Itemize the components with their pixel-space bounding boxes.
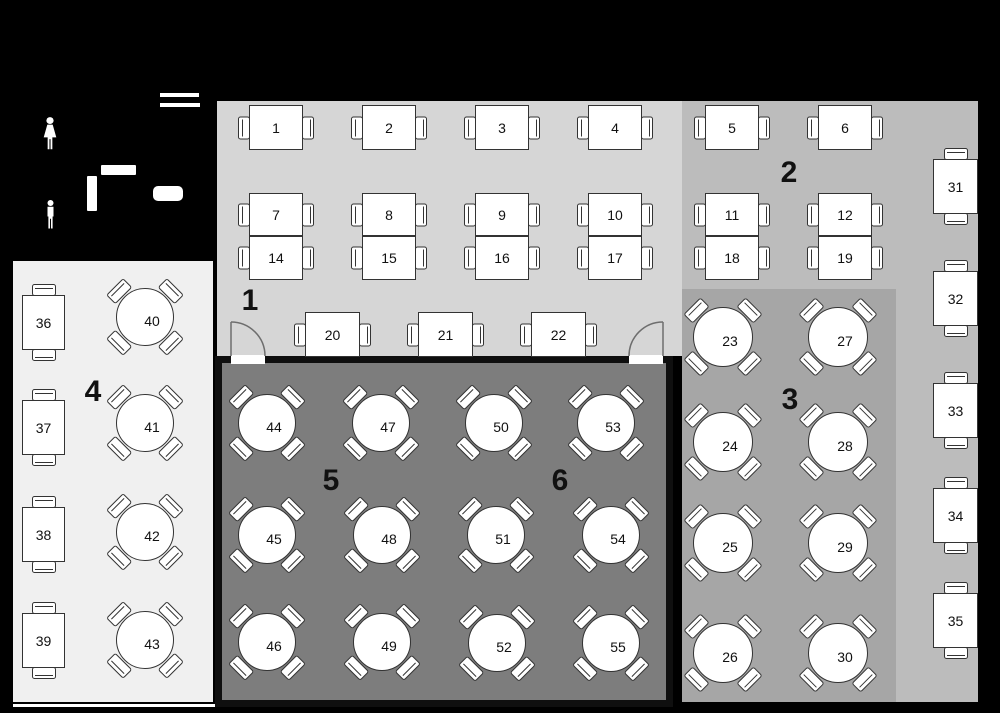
table-6[interactable]: 6 xyxy=(818,105,872,150)
table-surface: 49 xyxy=(353,613,411,671)
table-number: 39 xyxy=(36,634,52,648)
table-24[interactable]: 24 xyxy=(693,412,753,472)
table-number: 32 xyxy=(948,292,964,306)
floorplan-canvas: 1234567891011121415161718192021222324252… xyxy=(0,0,1000,713)
table-number: 12 xyxy=(837,208,853,222)
table-number: 29 xyxy=(837,540,853,554)
chair-icon xyxy=(944,437,968,449)
table-number: 1 xyxy=(272,121,280,135)
table-53[interactable]: 53 xyxy=(577,394,635,452)
chair-icon xyxy=(32,349,56,361)
table-5[interactable]: 5 xyxy=(705,105,759,150)
table-number: 43 xyxy=(144,637,160,651)
table-45[interactable]: 45 xyxy=(238,506,296,564)
table-number: 25 xyxy=(722,540,738,554)
counter-furniture xyxy=(101,165,136,175)
table-number: 28 xyxy=(837,439,853,453)
zone-4-bottom-wall-line xyxy=(13,704,215,707)
table-number: 40 xyxy=(144,314,160,328)
table-41[interactable]: 41 xyxy=(116,394,174,452)
table-3[interactable]: 3 xyxy=(475,105,529,150)
table-44[interactable]: 44 xyxy=(238,394,296,452)
table-surface: 32 xyxy=(933,271,978,326)
table-surface: 15 xyxy=(362,236,416,280)
table-number: 8 xyxy=(385,208,393,222)
chair-icon xyxy=(758,116,770,139)
chair-icon xyxy=(302,116,314,139)
table-number: 22 xyxy=(551,328,567,342)
table-surface: 40 xyxy=(116,288,174,346)
chair-icon xyxy=(871,247,883,270)
entrance-mark xyxy=(160,103,200,107)
table-surface: 37 xyxy=(22,400,65,455)
table-surface: 38 xyxy=(22,507,65,562)
zone-label-6: 6 xyxy=(552,464,569,498)
table-number: 49 xyxy=(381,639,397,653)
table-surface: 6 xyxy=(818,105,872,150)
table-number: 3 xyxy=(498,121,506,135)
table-number: 4 xyxy=(611,121,619,135)
table-34[interactable]: 34 xyxy=(933,488,978,543)
table-number: 10 xyxy=(607,208,623,222)
table-15[interactable]: 15 xyxy=(362,236,416,280)
zone-label-5: 5 xyxy=(323,464,340,498)
table-52[interactable]: 52 xyxy=(468,614,526,672)
table-surface: 55 xyxy=(582,614,640,672)
table-number: 24 xyxy=(722,439,738,453)
chair-icon xyxy=(641,203,653,226)
table-29[interactable]: 29 xyxy=(808,513,868,573)
entrance-mark xyxy=(160,93,199,97)
table-20[interactable]: 20 xyxy=(305,312,360,357)
table-21[interactable]: 21 xyxy=(418,312,473,357)
chair-icon xyxy=(415,203,427,226)
table-number: 16 xyxy=(494,251,510,265)
chair-icon xyxy=(585,323,597,346)
table-number: 20 xyxy=(325,328,341,342)
table-50[interactable]: 50 xyxy=(465,394,523,452)
male-icon-body xyxy=(48,207,54,229)
table-26[interactable]: 26 xyxy=(693,623,753,683)
table-surface: 39 xyxy=(22,613,65,668)
table-number: 42 xyxy=(144,529,160,543)
table-38[interactable]: 38 xyxy=(22,507,65,562)
table-number: 47 xyxy=(380,420,396,434)
table-surface: 3 xyxy=(475,105,529,150)
table-39[interactable]: 39 xyxy=(22,613,65,668)
table-surface: 5 xyxy=(705,105,759,150)
table-17[interactable]: 17 xyxy=(588,236,642,280)
table-10[interactable]: 10 xyxy=(588,193,642,236)
table-surface: 11 xyxy=(705,193,759,236)
zone-label-4: 4 xyxy=(85,375,102,409)
table-surface: 16 xyxy=(475,236,529,280)
table-surface: 14 xyxy=(249,236,303,280)
zone-label-2: 2 xyxy=(781,156,798,190)
table-surface: 1 xyxy=(249,105,303,150)
chair-icon xyxy=(758,203,770,226)
table-54[interactable]: 54 xyxy=(582,506,640,564)
table-number: 38 xyxy=(36,528,52,542)
table-surface: 48 xyxy=(353,506,411,564)
table-25[interactable]: 25 xyxy=(693,513,753,573)
table-number: 23 xyxy=(722,334,738,348)
table-2[interactable]: 2 xyxy=(362,105,416,150)
chair-icon xyxy=(415,116,427,139)
table-42[interactable]: 42 xyxy=(116,503,174,561)
table-surface: 29 xyxy=(808,513,868,573)
table-46[interactable]: 46 xyxy=(238,613,296,671)
table-14[interactable]: 14 xyxy=(249,236,303,280)
table-number: 51 xyxy=(495,532,511,546)
chair-icon xyxy=(359,323,371,346)
table-36[interactable]: 36 xyxy=(22,295,65,350)
table-surface: 45 xyxy=(238,506,296,564)
table-1[interactable]: 1 xyxy=(249,105,303,150)
table-surface: 19 xyxy=(818,236,872,280)
table-surface: 42 xyxy=(116,503,174,561)
table-35[interactable]: 35 xyxy=(933,593,978,648)
table-surface: 4 xyxy=(588,105,642,150)
table-surface: 31 xyxy=(933,159,978,214)
table-surface: 24 xyxy=(693,412,753,472)
table-47[interactable]: 47 xyxy=(352,394,410,452)
counter-furniture xyxy=(153,186,183,201)
table-number: 15 xyxy=(381,251,397,265)
table-number: 11 xyxy=(725,208,740,222)
table-23[interactable]: 23 xyxy=(693,307,753,367)
table-surface: 7 xyxy=(249,193,303,236)
table-surface: 50 xyxy=(465,394,523,452)
table-32[interactable]: 32 xyxy=(933,271,978,326)
table-surface: 9 xyxy=(475,193,529,236)
chair-icon xyxy=(871,116,883,139)
table-surface: 22 xyxy=(531,312,586,357)
table-number: 27 xyxy=(837,334,853,348)
chair-icon xyxy=(871,203,883,226)
table-27[interactable]: 27 xyxy=(808,307,868,367)
table-surface: 44 xyxy=(238,394,296,452)
table-surface: 21 xyxy=(418,312,473,357)
table-number: 33 xyxy=(948,404,964,418)
chair-icon xyxy=(944,647,968,659)
table-number: 17 xyxy=(607,251,623,265)
chair-icon xyxy=(758,247,770,270)
table-surface: 35 xyxy=(933,593,978,648)
table-number: 19 xyxy=(837,251,853,265)
table-number: 26 xyxy=(722,650,738,664)
table-number: 48 xyxy=(381,532,397,546)
table-surface: 41 xyxy=(116,394,174,452)
table-surface: 34 xyxy=(933,488,978,543)
table-number: 7 xyxy=(272,208,280,222)
male-restroom-icon xyxy=(48,200,54,229)
table-16[interactable]: 16 xyxy=(475,236,529,280)
counter-furniture xyxy=(87,176,97,211)
chair-icon xyxy=(641,116,653,139)
chair-icon xyxy=(472,323,484,346)
table-surface: 46 xyxy=(238,613,296,671)
table-surface: 10 xyxy=(588,193,642,236)
chair-icon xyxy=(528,247,540,270)
female-icon-body xyxy=(44,125,57,150)
table-surface: 23 xyxy=(693,307,753,367)
chair-icon xyxy=(528,203,540,226)
table-30[interactable]: 30 xyxy=(808,623,868,683)
table-18[interactable]: 18 xyxy=(705,236,759,280)
zone-label-3: 3 xyxy=(782,383,799,417)
chair-icon xyxy=(944,325,968,337)
table-number: 37 xyxy=(36,421,52,435)
table-8[interactable]: 8 xyxy=(362,193,416,236)
female-restroom-icon xyxy=(44,117,57,149)
table-19[interactable]: 19 xyxy=(818,236,872,280)
zone-label-1: 1 xyxy=(242,284,259,318)
table-surface: 36 xyxy=(22,295,65,350)
table-surface: 54 xyxy=(582,506,640,564)
table-49[interactable]: 49 xyxy=(353,613,411,671)
table-number: 34 xyxy=(948,509,964,523)
table-surface: 25 xyxy=(693,513,753,573)
table-48[interactable]: 48 xyxy=(353,506,411,564)
chair-icon xyxy=(528,116,540,139)
table-number: 36 xyxy=(36,316,52,330)
table-43[interactable]: 43 xyxy=(116,611,174,669)
table-number: 46 xyxy=(266,639,282,653)
table-number: 55 xyxy=(610,640,626,654)
table-number: 5 xyxy=(728,121,736,135)
table-number: 50 xyxy=(493,420,509,434)
table-number: 2 xyxy=(385,121,393,135)
table-surface: 47 xyxy=(352,394,410,452)
table-number: 21 xyxy=(438,328,454,342)
table-number: 31 xyxy=(948,180,964,194)
table-40[interactable]: 40 xyxy=(116,288,174,346)
table-surface: 27 xyxy=(808,307,868,367)
table-number: 6 xyxy=(841,121,849,135)
table-33[interactable]: 33 xyxy=(933,383,978,438)
chair-icon xyxy=(415,247,427,270)
table-12[interactable]: 12 xyxy=(818,193,872,236)
chair-icon xyxy=(302,247,314,270)
table-number: 52 xyxy=(496,640,512,654)
table-surface: 28 xyxy=(808,412,868,472)
chair-icon xyxy=(944,542,968,554)
table-surface: 17 xyxy=(588,236,642,280)
table-28[interactable]: 28 xyxy=(808,412,868,472)
table-51[interactable]: 51 xyxy=(467,506,525,564)
table-number: 54 xyxy=(610,532,626,546)
table-surface: 26 xyxy=(693,623,753,683)
table-4[interactable]: 4 xyxy=(588,105,642,150)
table-9[interactable]: 9 xyxy=(475,193,529,236)
table-number: 53 xyxy=(605,420,621,434)
table-number: 35 xyxy=(948,614,964,628)
table-31[interactable]: 31 xyxy=(933,159,978,214)
table-11[interactable]: 11 xyxy=(705,193,759,236)
chair-icon xyxy=(641,247,653,270)
chair-icon xyxy=(32,561,56,573)
table-surface: 33 xyxy=(933,383,978,438)
table-surface: 30 xyxy=(808,623,868,683)
male-icon-head xyxy=(48,200,54,206)
table-number: 14 xyxy=(268,251,284,265)
table-number: 18 xyxy=(724,251,740,265)
female-icon-head xyxy=(46,117,53,124)
table-22[interactable]: 22 xyxy=(531,312,586,357)
table-surface: 51 xyxy=(467,506,525,564)
table-number: 30 xyxy=(837,650,853,664)
table-number: 9 xyxy=(498,208,506,222)
table-surface: 12 xyxy=(818,193,872,236)
table-surface: 8 xyxy=(362,193,416,236)
table-surface: 2 xyxy=(362,105,416,150)
chair-icon xyxy=(944,213,968,225)
table-surface: 20 xyxy=(305,312,360,357)
table-55[interactable]: 55 xyxy=(582,614,640,672)
table-surface: 18 xyxy=(705,236,759,280)
table-surface: 43 xyxy=(116,611,174,669)
table-surface: 52 xyxy=(468,614,526,672)
table-number: 44 xyxy=(266,420,282,434)
table-number: 45 xyxy=(266,532,282,546)
table-number: 41 xyxy=(144,420,160,434)
chair-icon xyxy=(32,667,56,679)
table-surface: 53 xyxy=(577,394,635,452)
chair-icon xyxy=(32,454,56,466)
table-7[interactable]: 7 xyxy=(249,193,303,236)
table-37[interactable]: 37 xyxy=(22,400,65,455)
chair-icon xyxy=(302,203,314,226)
